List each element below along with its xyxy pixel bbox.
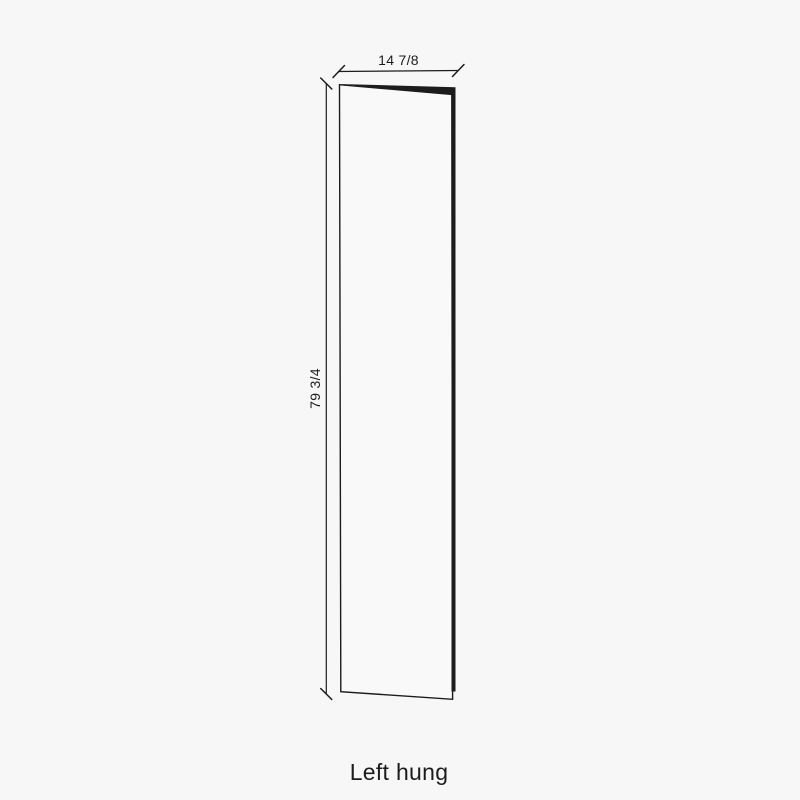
door-drawing-svg: [0, 0, 800, 800]
width-dimension-line: [339, 71, 459, 72]
height-dimension-label: 79 3/4: [307, 347, 324, 430]
door-panel-face: [340, 85, 453, 700]
width-dimension-label: 14 7/8: [338, 52, 459, 68]
door-diagram: 14 7/8 79 3/4 Left hung: [0, 0, 800, 800]
door-hang-caption: Left hung: [299, 759, 499, 786]
